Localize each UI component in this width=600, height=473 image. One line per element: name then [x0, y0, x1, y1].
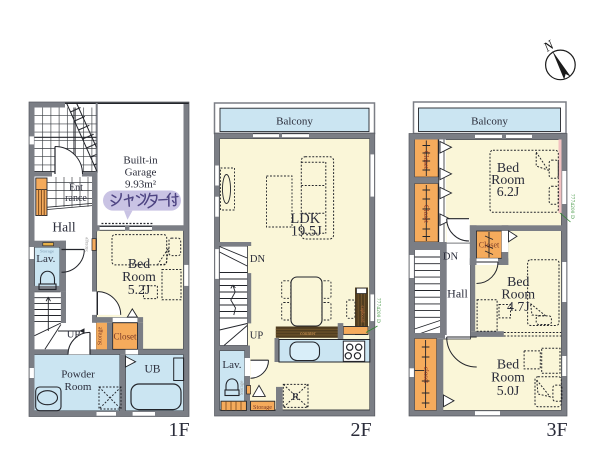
svg-text:UP: UP — [250, 331, 264, 342]
svg-text:Room: Room — [65, 381, 92, 393]
svg-text:6.2J: 6.2J — [497, 184, 520, 199]
svg-text:Storage: Storage — [240, 381, 245, 396]
svg-text:19.5J: 19.5J — [291, 224, 322, 240]
svg-text:9.93m²: 9.93m² — [125, 179, 157, 191]
svg-text:Storage: Storage — [98, 326, 104, 345]
svg-text:Ent: Ent — [69, 183, 83, 194]
svg-text:7774200 D: 7774200 D — [569, 194, 574, 219]
svg-text:UB: UB — [145, 364, 161, 376]
svg-text:5.2J: 5.2J — [128, 282, 151, 297]
svg-text:Storage: Storage — [253, 404, 272, 411]
svg-text:3F: 3F — [546, 419, 567, 441]
svg-text:DN: DN — [443, 252, 459, 263]
svg-text:Closet: Closet — [422, 205, 430, 223]
svg-text:2F: 2F — [350, 419, 371, 441]
svg-text:Built-in: Built-in — [123, 155, 158, 167]
svg-text:4.7J: 4.7J — [507, 299, 530, 314]
svg-text:5.0J: 5.0J — [497, 383, 520, 398]
svg-text:cupboard: cupboard — [361, 306, 366, 323]
svg-text:Garage: Garage — [125, 167, 157, 179]
svg-text:Balcony: Balcony — [471, 116, 508, 128]
svg-text:Lav.: Lav. — [222, 359, 241, 371]
svg-text:Closet: Closet — [422, 151, 430, 169]
svg-text:7774200 D: 7774200 D — [375, 298, 380, 323]
svg-text:Hall: Hall — [52, 220, 75, 235]
svg-text:Powder: Powder — [61, 369, 95, 381]
svg-text:UP: UP — [67, 330, 81, 341]
svg-text:rance: rance — [65, 193, 87, 204]
svg-text:Hall: Hall — [447, 287, 468, 301]
svg-text:1F: 1F — [168, 419, 189, 441]
svg-text:Balcony: Balcony — [276, 116, 313, 128]
svg-text:closet: closet — [422, 367, 430, 383]
svg-text:Closet: Closet — [113, 332, 137, 342]
svg-text:R: R — [292, 391, 300, 403]
svg-text:Closet: Closet — [479, 241, 500, 250]
svg-text:Storage: Storage — [85, 237, 90, 252]
svg-text:Lav.: Lav. — [36, 253, 55, 265]
svg-text:DN: DN — [250, 254, 266, 265]
svg-text:counter: counter — [300, 331, 316, 337]
